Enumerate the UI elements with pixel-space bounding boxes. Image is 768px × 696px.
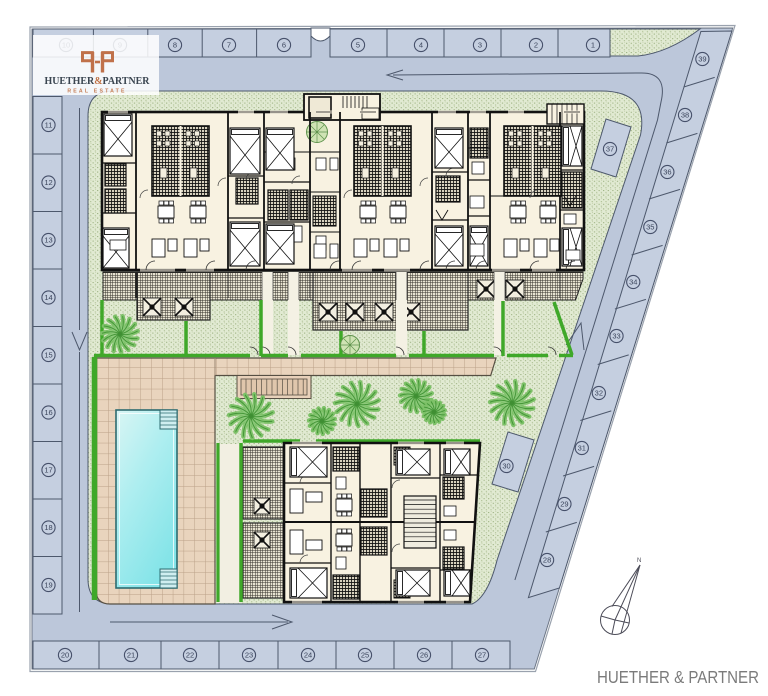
svg-text:22: 22 bbox=[186, 651, 194, 660]
svg-text:25: 25 bbox=[361, 651, 369, 660]
svg-text:20: 20 bbox=[61, 651, 69, 660]
svg-text:16: 16 bbox=[44, 408, 52, 417]
svg-text:HUETHER & PARTNER: HUETHER & PARTNER bbox=[597, 667, 759, 687]
svg-text:19: 19 bbox=[44, 581, 52, 590]
svg-text:12: 12 bbox=[44, 178, 52, 187]
svg-text:29: 29 bbox=[560, 500, 568, 509]
svg-text:13: 13 bbox=[44, 236, 52, 245]
svg-text:7: 7 bbox=[227, 41, 231, 50]
svg-text:27: 27 bbox=[478, 651, 486, 660]
svg-text:4: 4 bbox=[419, 41, 423, 50]
svg-text:5: 5 bbox=[356, 41, 360, 50]
svg-text:26: 26 bbox=[420, 651, 428, 660]
svg-text:14: 14 bbox=[44, 293, 52, 302]
svg-text:35: 35 bbox=[646, 223, 654, 232]
svg-text:37: 37 bbox=[606, 145, 614, 154]
svg-text:18: 18 bbox=[44, 523, 52, 532]
svg-text:HUETHER&PARTNER: HUETHER&PARTNER bbox=[45, 75, 151, 87]
svg-text:15: 15 bbox=[44, 351, 52, 360]
svg-text:6: 6 bbox=[282, 41, 286, 50]
svg-text:17: 17 bbox=[44, 466, 52, 475]
svg-text:24: 24 bbox=[304, 651, 312, 660]
svg-text:31: 31 bbox=[578, 444, 586, 453]
svg-text:3: 3 bbox=[478, 41, 482, 50]
svg-text:21: 21 bbox=[127, 651, 135, 660]
svg-text:23: 23 bbox=[245, 651, 253, 660]
svg-text:28: 28 bbox=[543, 556, 551, 565]
svg-text:32: 32 bbox=[595, 389, 603, 398]
svg-text:N: N bbox=[637, 558, 641, 564]
svg-text:2: 2 bbox=[534, 41, 538, 50]
svg-text:REAL ESTATE: REAL ESTATE bbox=[67, 89, 126, 95]
svg-text:8: 8 bbox=[173, 41, 177, 50]
svg-text:30: 30 bbox=[502, 462, 510, 471]
svg-text:38: 38 bbox=[681, 111, 689, 120]
svg-text:11: 11 bbox=[45, 121, 53, 130]
svg-text:1: 1 bbox=[591, 41, 595, 50]
svg-text:34: 34 bbox=[629, 278, 637, 287]
svg-text:36: 36 bbox=[663, 168, 671, 177]
svg-text:39: 39 bbox=[698, 55, 706, 64]
svg-text:33: 33 bbox=[612, 332, 620, 341]
